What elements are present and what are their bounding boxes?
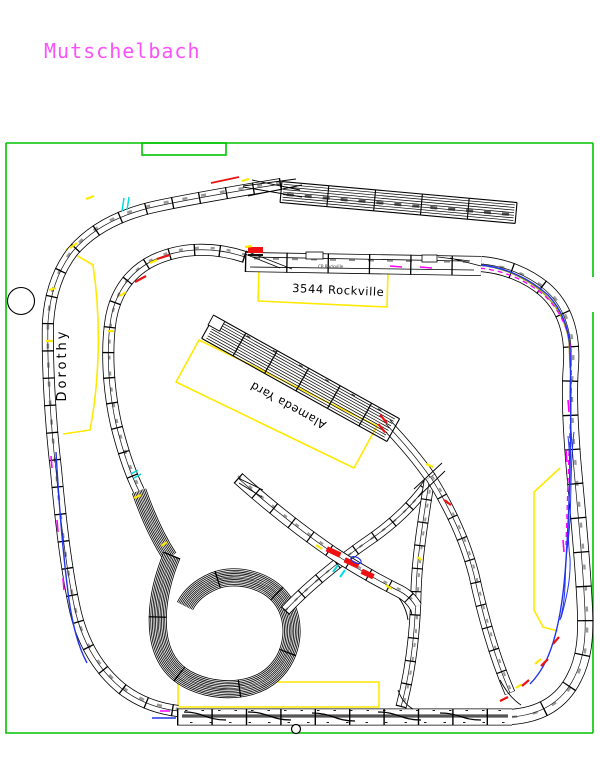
top-staging-yard: [243, 179, 517, 223]
layout-canvas[interactable]: Mutschelbach Dorothy 3544 Rockville Alam…: [0, 0, 600, 777]
right-region-outline: [534, 468, 560, 631]
bottom-staging-yard: [152, 711, 512, 723]
right-staging-track: [336, 262, 587, 717]
page-title: Mutschelbach: [44, 39, 201, 63]
rockville-yard: [245, 247, 481, 270]
inner-main-line: [108, 248, 246, 491]
wall-notch: [142, 143, 226, 155]
bottom-door-circle: [292, 725, 301, 734]
cp-rockville-label: CP Rockville: [318, 264, 344, 269]
track-plan-page: Mutschelbach Dorothy 3544 Rockville Alam…: [0, 0, 600, 777]
left-door-circle: [8, 288, 35, 315]
junction-branches: [285, 424, 521, 709]
rockville-label: 3544 Rockville: [292, 281, 385, 299]
red-marker-box: [248, 247, 263, 253]
helix-track: [139, 491, 292, 689]
dorothy-label: Dorothy: [55, 328, 70, 401]
